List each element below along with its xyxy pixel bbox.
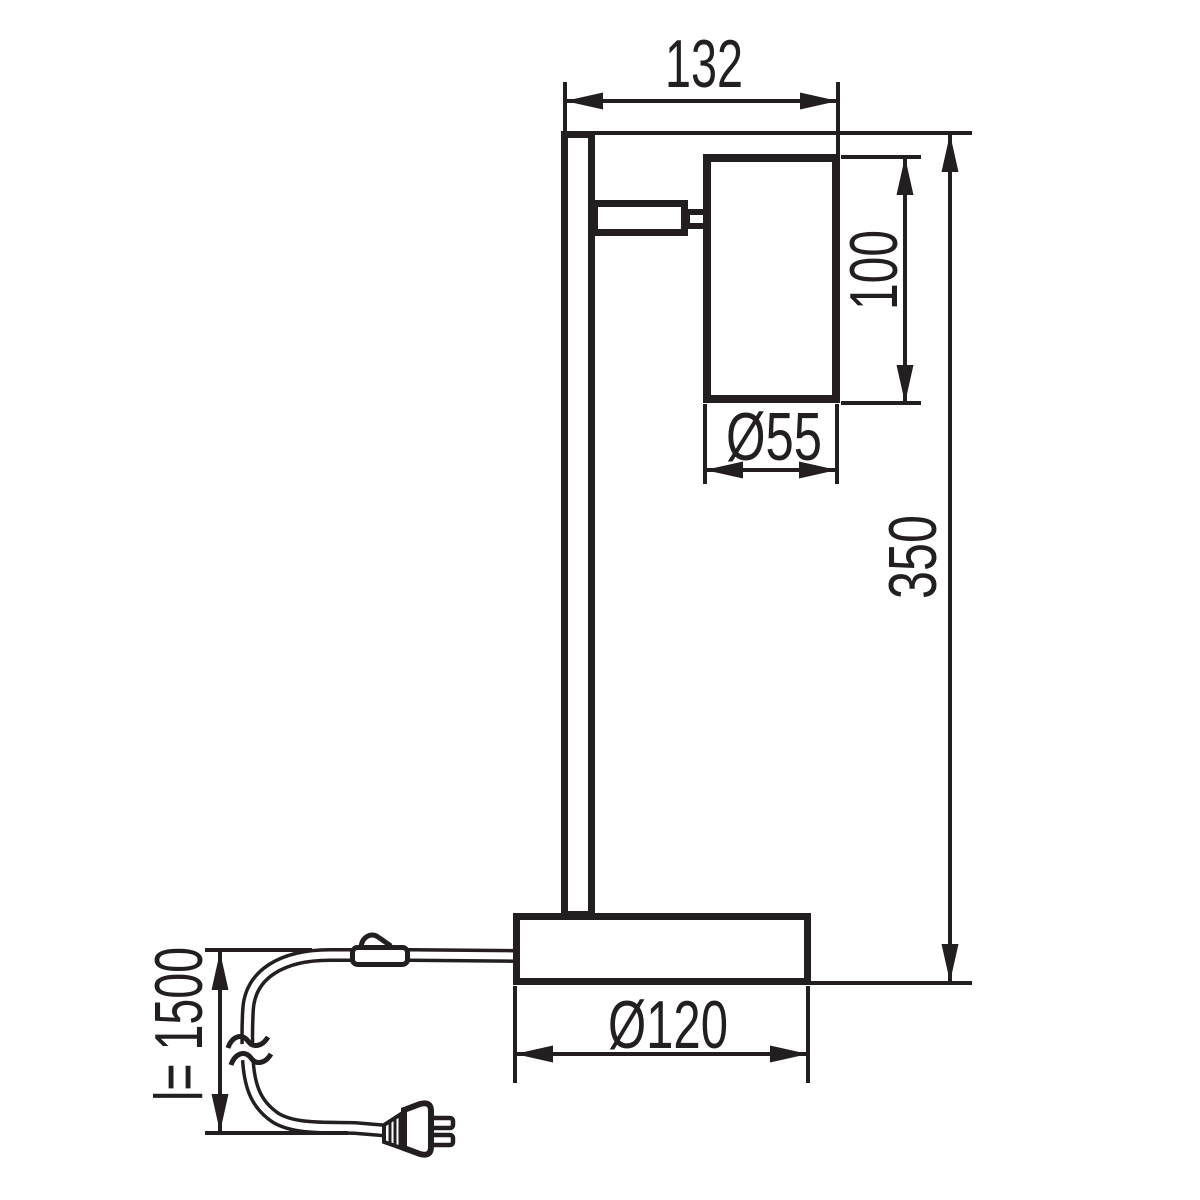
cable-break-marks: [223, 1037, 277, 1065]
plug-body: [404, 1103, 431, 1154]
label-shade-diameter: Ø55: [726, 399, 822, 475]
drawing-canvas: 132 100 Ø55 350 Ø120 l= 1500: [0, 0, 1200, 1200]
lamp-dimension-drawing: 132 100 Ø55 350 Ø120 l= 1500: [0, 0, 1200, 1200]
label-base-diameter: Ø120: [608, 987, 728, 1063]
label-total-height: 350: [875, 515, 951, 599]
power-plug: [384, 1103, 453, 1154]
dim-100-arrow-bottom: [897, 365, 914, 403]
dim-132-arrow-right: [800, 93, 838, 110]
lamp: [517, 135, 837, 982]
dim-cable-length: [205, 950, 348, 1133]
switch-body: [353, 948, 408, 965]
dim-100-arrow-top: [897, 157, 914, 195]
cable-core: [247, 955, 516, 1131]
lamp-arm: [595, 204, 685, 233]
power-cable: [223, 955, 516, 1131]
dim-120-arrow-right: [770, 1046, 808, 1063]
dim-132-arrow-left: [565, 93, 603, 110]
label-shade-height: 100: [836, 230, 912, 310]
lamp-base: [517, 917, 808, 982]
lamp-shade: [707, 158, 836, 399]
plug-prong-top: [431, 1118, 453, 1128]
label-cable-length: l= 1500: [141, 947, 217, 1101]
dim-120-arrow-left: [515, 1046, 553, 1063]
cable-outline: [247, 955, 516, 1131]
dim-350-arrow-bottom: [942, 944, 959, 982]
dim-1500-lines: [205, 950, 348, 1133]
plug-prong-bottom: [431, 1135, 453, 1145]
dim-350-arrow-top: [942, 134, 959, 172]
lamp-pole: [565, 135, 592, 915]
label-top-width: 132: [665, 26, 743, 102]
inline-switch: [353, 935, 408, 964]
